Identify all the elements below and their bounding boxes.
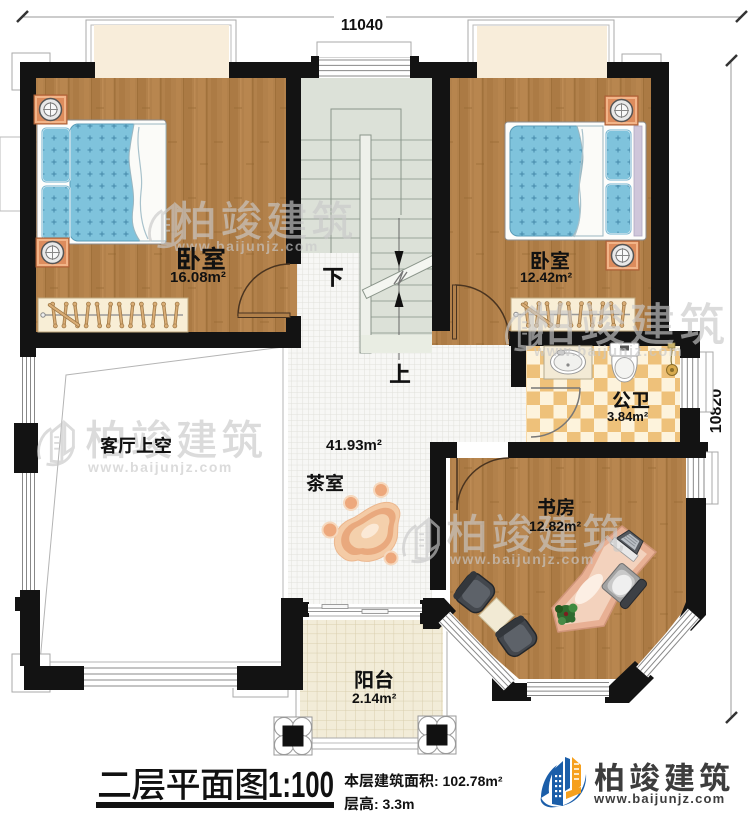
svg-text:12.42m²: 12.42m² <box>520 269 572 285</box>
svg-text:11040: 11040 <box>341 17 383 34</box>
svg-text:1:100: 1:100 <box>268 764 334 805</box>
svg-text:2.14m²: 2.14m² <box>352 690 397 706</box>
svg-text:www.baijunjz.com: www.baijunjz.com <box>87 459 233 475</box>
svg-text:41.93m²: 41.93m² <box>326 437 382 454</box>
svg-text:12.82m²: 12.82m² <box>529 518 581 534</box>
svg-text:3.84m²: 3.84m² <box>607 409 649 424</box>
svg-text:16.08m²: 16.08m² <box>170 269 226 286</box>
svg-text:: 3.3m: : 3.3m <box>374 796 414 812</box>
svg-text:: 102.78m²: : 102.78m² <box>434 773 503 789</box>
svg-text:www.baijunjz.com: www.baijunjz.com <box>449 551 595 567</box>
svg-text:www.baijunjz.com: www.baijunjz.com <box>533 344 683 360</box>
svg-text:www.baijunjz.com: www.baijunjz.com <box>593 791 725 806</box>
svg-text:www.baijunjz.com: www.baijunjz.com <box>173 238 319 254</box>
